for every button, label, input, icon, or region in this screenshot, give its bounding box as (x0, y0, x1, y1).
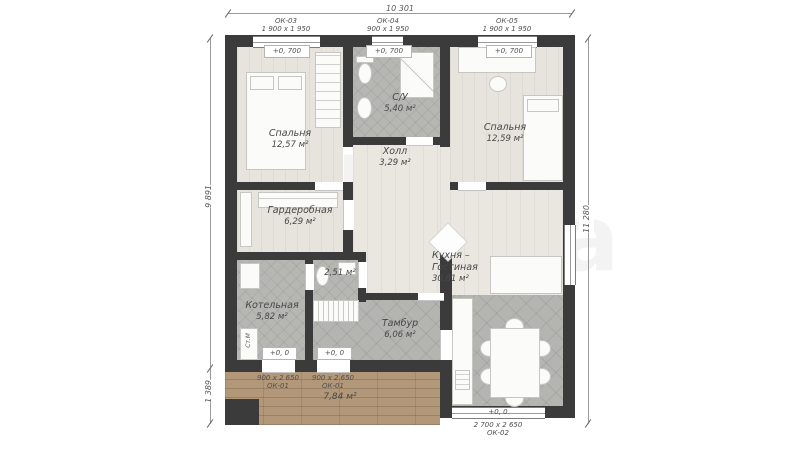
washing-machine-icon: Ст.М (240, 328, 258, 360)
window-living-right (564, 225, 576, 285)
room-label-wardrobe: Гардеробная 6,29 м² (255, 205, 345, 228)
dimension-left-main-value: 9 891 (201, 185, 216, 208)
room-label-bedroom1: Спальня 12,57 м² (250, 128, 330, 151)
room-label-bedroom2: Спальня 12,59 м² (465, 122, 545, 145)
door-bedroom1 (315, 182, 343, 191)
room-label-terrace: 7,84 м² (300, 392, 380, 403)
floor-plan: Два этажа (0, 0, 800, 450)
dimension-top-value: 10 301 (383, 4, 417, 13)
radiator-icon (313, 300, 359, 322)
door-label-ok01-b: 900 х 2 650 ОК-01 (298, 374, 368, 391)
dimension-tick (207, 419, 214, 428)
dining-table-icon (490, 328, 540, 398)
window-label-ok03: ОК-03 1 900 х 1 950 (251, 17, 321, 34)
elevation-mark: +0, 0 (262, 347, 297, 360)
room-label-boiler: Котельная 5,82 м² (232, 300, 312, 323)
room-label-wc: 2,51 м² (318, 268, 362, 279)
elevation-mark: +0, 700 (486, 45, 532, 58)
room-label-hall: Холл 3,29 м² (360, 146, 430, 169)
pillow-icon (250, 76, 274, 90)
dimension-right-value: 11 280 (579, 205, 594, 233)
boiler-icon (240, 263, 260, 289)
door-bedroom2 (458, 182, 486, 191)
washing-machine-label: Ст.М (245, 333, 252, 348)
room-label-bathroom: С/У 5,40 м² (375, 92, 425, 115)
window-label-ok05: ОК-05 1 900 х 1 950 (472, 17, 542, 34)
dimension-tick (585, 419, 592, 428)
pillow-icon (278, 76, 302, 90)
room-label-tambour: Тамбур 6,06 м² (365, 318, 435, 341)
dimension-line-top (228, 13, 572, 14)
pillow-icon (527, 99, 559, 112)
door-ok-01-a (262, 360, 295, 373)
elevation-mark: +0, 0 (480, 408, 516, 416)
mirror-icon (240, 192, 252, 247)
door-boiler (305, 264, 314, 290)
elevation-mark: +0, 700 (264, 45, 310, 58)
wall-bathroom-bottom (343, 137, 450, 145)
door-tambour (418, 293, 444, 301)
window-label-ok02: 2 700 х 2 650 ОК-02 (463, 421, 533, 438)
door-ok-01-b (317, 360, 350, 373)
elevation-mark: +0, 700 (366, 45, 412, 58)
dimension-tick (569, 9, 576, 18)
toilet-icon (358, 63, 372, 84)
wall-bathroom-bedroom2 (440, 47, 450, 147)
dimension-left-terrace-value: 1 389 (201, 380, 216, 403)
wardrobe-icon (315, 52, 341, 128)
terrace-post (225, 399, 259, 425)
wall-bedroom1-bathroom (343, 47, 353, 147)
chair-icon (489, 76, 507, 92)
room-label-kitchen: Кухня – Гостиная 30,81 м² (420, 250, 512, 284)
elevation-mark: +0, 0 (317, 347, 352, 360)
stove-icon (455, 370, 470, 390)
window-label-ok04: ОК-04 900 х 1 950 (353, 17, 423, 34)
door-bathroom (406, 137, 433, 146)
sink-icon (357, 97, 372, 119)
wall-wardrobe-bottom (225, 252, 366, 260)
